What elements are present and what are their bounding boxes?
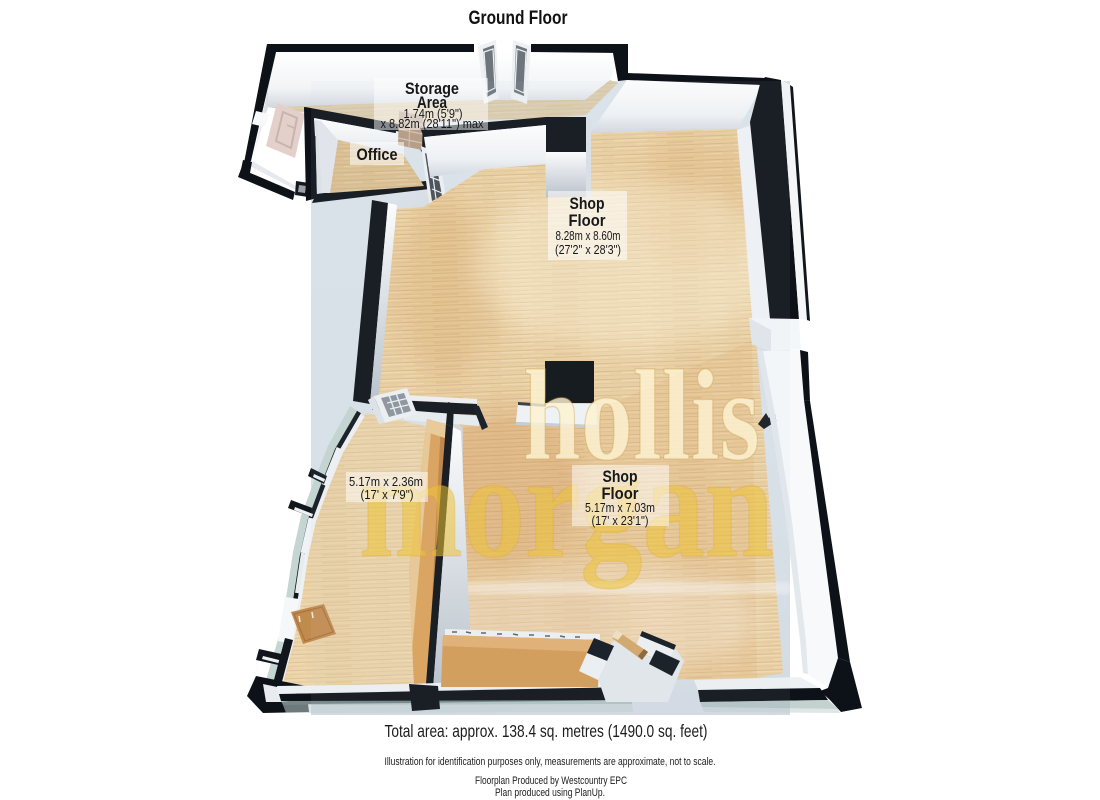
svg-text:Shop: Shop xyxy=(570,195,605,213)
svg-text:x 8.82m (28'11") max: x 8.82m (28'11") max xyxy=(381,117,485,131)
svg-text:Plan produced using PlanUp.: Plan produced using PlanUp. xyxy=(495,787,605,799)
svg-text:8.28m x 8.60m: 8.28m x 8.60m xyxy=(556,229,621,243)
svg-text:(17' x 23'1"): (17' x 23'1") xyxy=(592,514,649,528)
svg-text:Shop: Shop xyxy=(603,468,638,486)
svg-text:Floorplan Produced by Westcoun: Floorplan Produced by Westcountry EPC xyxy=(475,775,627,787)
svg-text:5.17m x 2.36m: 5.17m x 2.36m xyxy=(349,475,423,489)
svg-text:5.17m x 7.03m: 5.17m x 7.03m xyxy=(585,501,655,515)
svg-text:(27'2" x 28'3"): (27'2" x 28'3") xyxy=(555,243,621,257)
svg-text:Total area: approx. 138.4 sq.: Total area: approx. 138.4 sq. metres (14… xyxy=(385,721,708,741)
svg-text:Ground Floor: Ground Floor xyxy=(469,8,568,29)
svg-text:(17' x 7'9"): (17' x 7'9") xyxy=(361,488,414,502)
svg-text:morgan: morgan xyxy=(359,423,774,589)
svg-text:Floor: Floor xyxy=(569,212,607,230)
svg-text:Office: Office xyxy=(357,146,398,164)
svg-text:Illustration for identificatio: Illustration for identification purposes… xyxy=(385,756,716,768)
